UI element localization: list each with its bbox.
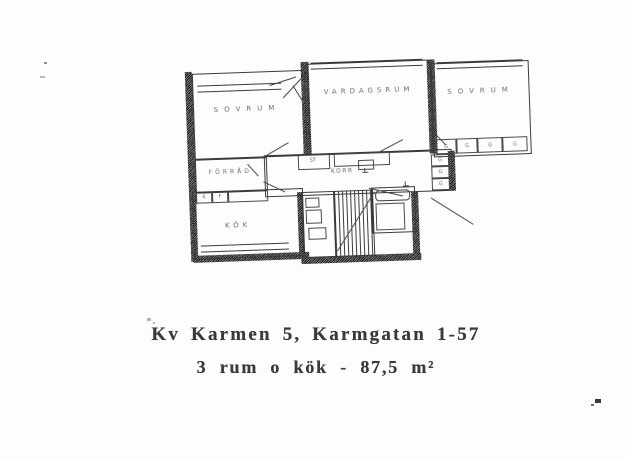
toilet-fixture [306, 209, 322, 224]
caption-size: 3 rum o kök - 87,5 m² [10, 357, 622, 378]
wardrobe-label: G [438, 169, 442, 175]
entry-door-swing [431, 198, 474, 225]
wardrobe-cell: G [456, 138, 478, 154]
wardrobe-cell: G [432, 178, 450, 191]
scan-speck [153, 322, 155, 324]
closet-st-label: ST [298, 158, 328, 164]
bath-fixture [308, 227, 326, 240]
room-living [307, 59, 434, 155]
wardrobe-cell: G [431, 166, 449, 179]
caption: Kv Karmen 5, Karmgatan 1-57 3 rum o kök … [10, 324, 622, 378]
wardrobe-cell: G [431, 154, 449, 167]
shower-square [375, 202, 405, 230]
wardrobe-cell: G [502, 136, 527, 152]
scan-speck [44, 62, 47, 64]
wardrobe-label: G [465, 143, 469, 149]
scan-speck [147, 318, 151, 321]
wardrobe-label: G [513, 141, 517, 147]
hall-wardrobe-stack: G G G [431, 154, 450, 191]
wardrobe-cell: G [477, 137, 502, 153]
caption-address: Kv Karmen 5, Karmgatan 1-57 [10, 324, 622, 346]
scan-speck [40, 76, 45, 78]
scan-speck [591, 404, 594, 406]
scan-speck [595, 399, 601, 403]
wardrobe-label: G [439, 181, 443, 187]
floor-plan: SOVRUM VARDAGSRUM SOVRUM G G G G ST KORR… [182, 50, 537, 274]
wardrobe-label: G [438, 157, 442, 163]
sink-fixture [305, 197, 319, 207]
wardrobe-label: G [488, 142, 492, 148]
